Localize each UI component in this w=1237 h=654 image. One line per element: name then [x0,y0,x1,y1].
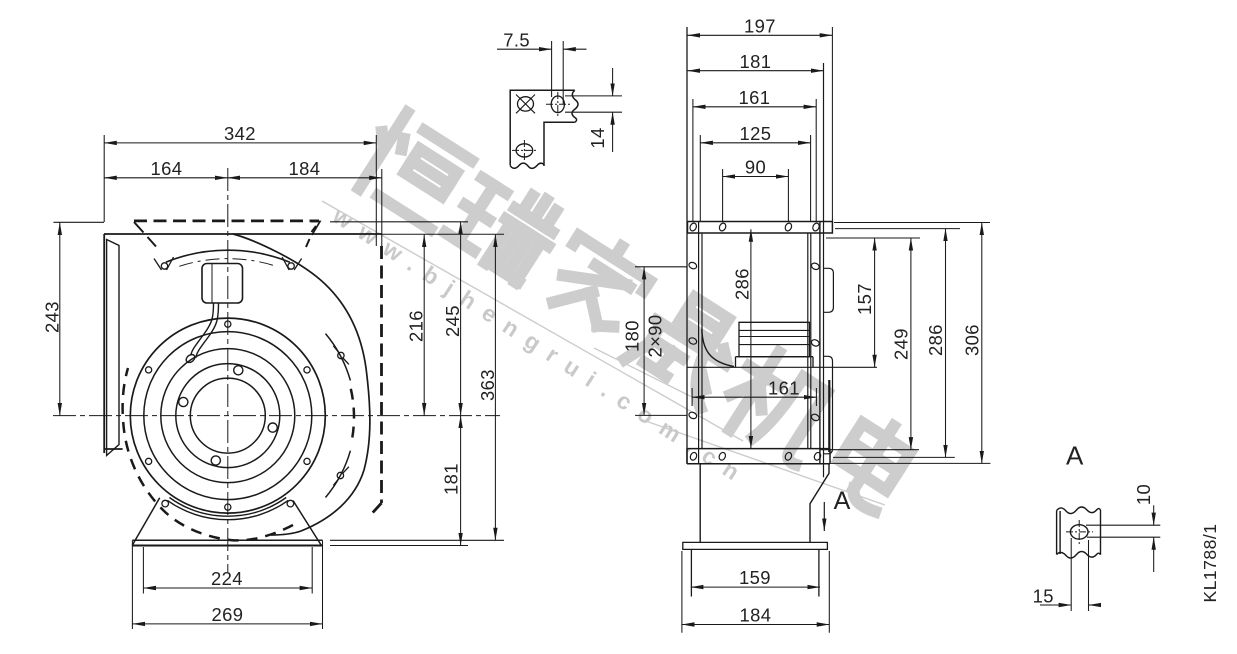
svg-text:184: 184 [740,605,772,626]
svg-text:90: 90 [745,157,766,178]
svg-text:2×90: 2×90 [645,314,666,357]
svg-text:286: 286 [731,268,752,300]
svg-text:7.5: 7.5 [503,30,530,51]
svg-text:161: 161 [768,377,800,398]
svg-text:249: 249 [890,328,911,360]
svg-text:184: 184 [289,158,321,179]
svg-text:363: 363 [477,369,498,401]
svg-text:125: 125 [740,123,772,144]
svg-text:10: 10 [1133,484,1154,505]
svg-text:245: 245 [442,305,463,337]
svg-text:286: 286 [925,324,946,356]
svg-text:14: 14 [587,127,608,148]
svg-text:A: A [1066,441,1084,471]
svg-text:181: 181 [740,51,772,72]
svg-text:161: 161 [739,87,771,108]
svg-text:KL1788/1: KL1788/1 [1200,524,1220,603]
svg-text:15: 15 [1033,586,1054,607]
svg-text:269: 269 [212,604,244,625]
svg-text:164: 164 [151,158,183,179]
svg-text:224: 224 [211,568,243,589]
svg-text:180: 180 [621,320,642,352]
svg-text:181: 181 [440,463,461,495]
svg-text:197: 197 [744,15,776,36]
svg-text:216: 216 [406,310,427,342]
svg-text:A: A [834,487,851,515]
svg-text:243: 243 [41,301,62,333]
svg-text:159: 159 [739,567,771,588]
svg-text:157: 157 [854,283,875,315]
svg-text:342: 342 [224,123,256,144]
svg-text:306: 306 [961,324,982,356]
